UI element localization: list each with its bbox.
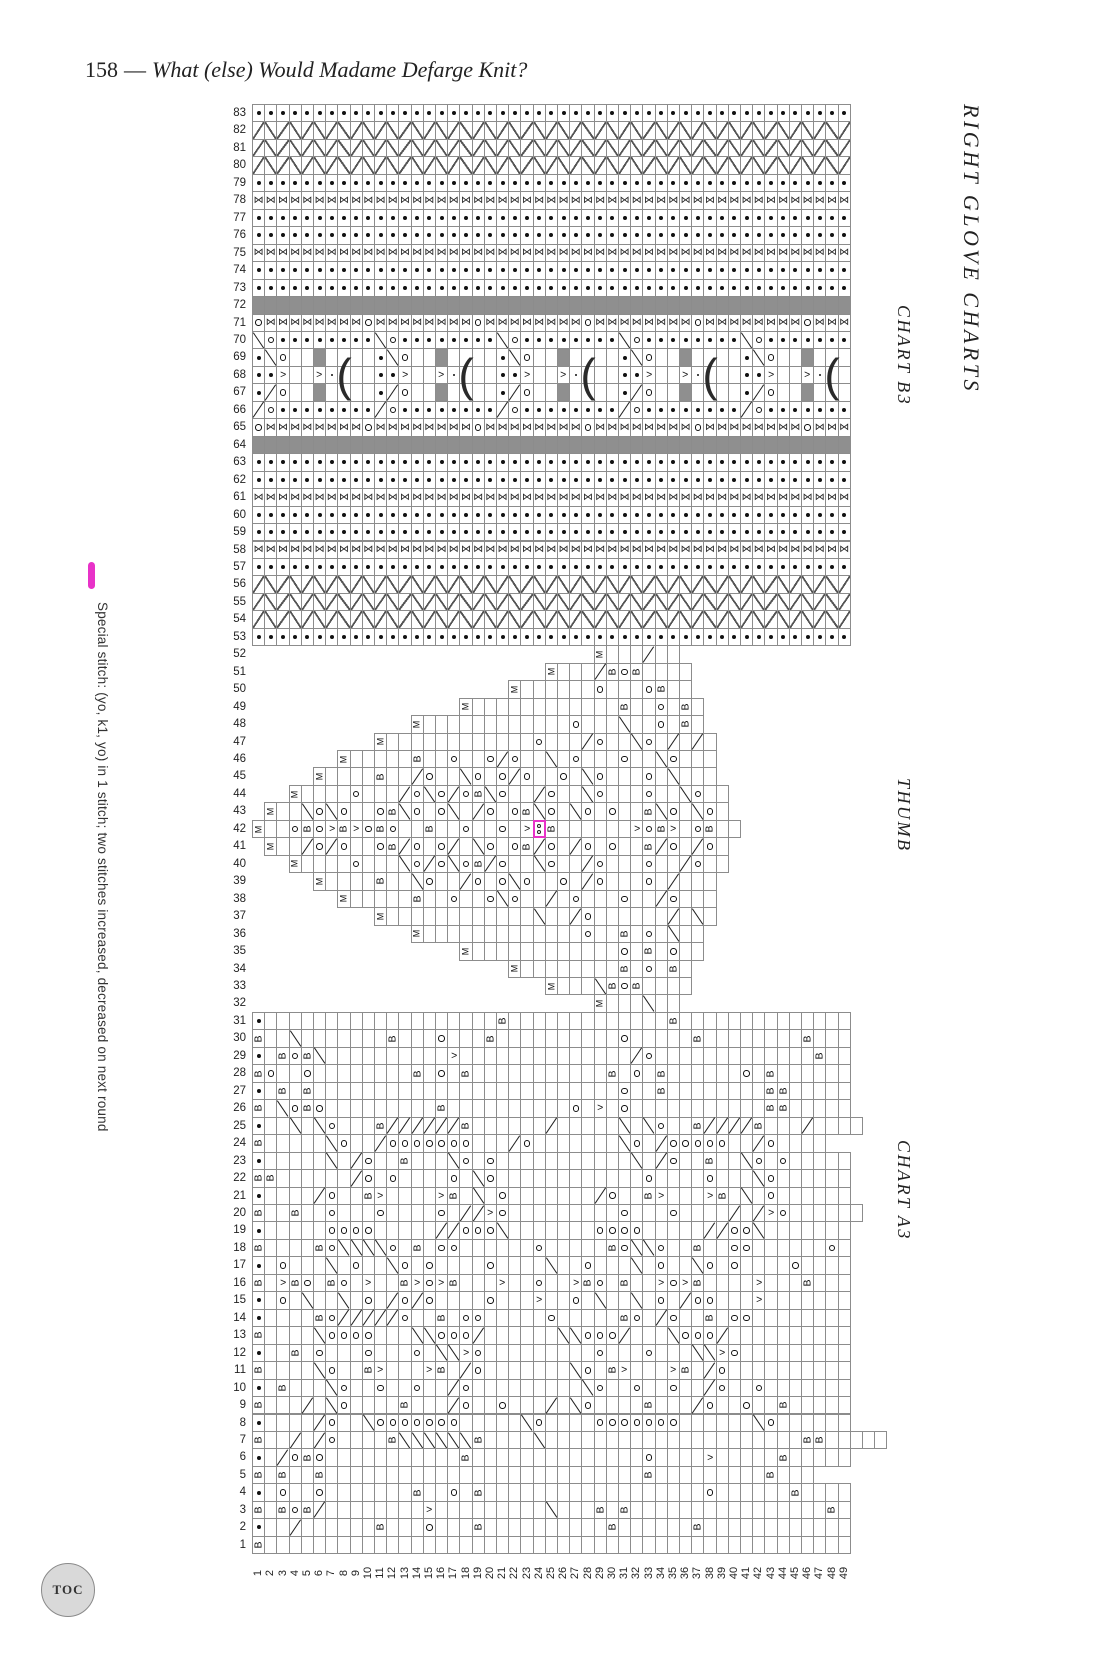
purl-dot-icon	[305, 513, 309, 517]
stitch-cell: ⋈	[398, 418, 411, 436]
cable-cross-cell	[594, 575, 607, 593]
stitch-cell	[691, 1414, 704, 1432]
twist-stitch-icon: ⋈	[461, 544, 471, 555]
purl-dot-icon	[452, 216, 456, 220]
purl-dot-icon	[598, 565, 602, 569]
no-stitch-cell	[545, 436, 558, 454]
stitch-cell	[398, 1344, 411, 1362]
twist-stitch-icon: ⋈	[522, 422, 532, 433]
stitch-cell	[350, 1047, 363, 1065]
stitch-cell	[289, 1448, 302, 1466]
stitch-cell	[545, 104, 558, 122]
stitch-cell: ⋈	[398, 191, 411, 209]
purl-dot-icon	[549, 478, 553, 482]
stitch-cell	[581, 401, 594, 419]
stitch-cell	[520, 1274, 533, 1292]
stitch-cell	[264, 1082, 277, 1100]
twist-stitch-icon: ⋈	[473, 492, 483, 503]
stitch-cell	[667, 1431, 680, 1449]
stitch-cell	[533, 925, 546, 943]
stitch-cell	[289, 331, 302, 349]
stitch-cell	[520, 872, 533, 890]
yarn-over-icon	[743, 1245, 750, 1252]
stitch-cell	[752, 1361, 765, 1379]
twist-stitch-icon: ⋈	[546, 247, 556, 258]
stitch-cell	[386, 1047, 399, 1065]
purl-dot-icon	[354, 478, 358, 482]
bobble-icon: B	[461, 1122, 471, 1129]
stitch-cell	[752, 1169, 765, 1187]
stitch-cell: ⋈	[606, 418, 619, 436]
stitch-cell	[642, 733, 655, 751]
purl-dot-icon	[293, 635, 297, 639]
stitch-cell	[728, 1134, 741, 1152]
cable-cross-cell	[545, 610, 558, 628]
purl-dot-icon	[257, 1421, 261, 1425]
stitch-cell	[581, 785, 594, 803]
stitch-cell	[594, 261, 607, 279]
yarn-over-icon	[585, 1332, 592, 1339]
stitch-cell	[691, 1361, 704, 1379]
purl-dot-icon	[501, 216, 505, 220]
no-stitch-cell	[691, 296, 704, 314]
purl-dot-icon	[635, 565, 639, 569]
stitch-cell	[667, 1134, 680, 1152]
stitch-cell	[630, 558, 643, 576]
yarn-over-icon	[377, 843, 384, 850]
yarn-over-icon	[268, 1070, 275, 1077]
stitch-cell: B	[777, 1448, 790, 1466]
bobble-icon: B	[656, 1070, 666, 1077]
stitch-cell	[362, 1204, 375, 1222]
stitch-cell: B	[642, 942, 655, 960]
stitch-cell	[569, 680, 582, 698]
bobble-icon: B	[315, 1314, 325, 1321]
stitch-cell	[264, 1274, 277, 1292]
purl-dot-icon	[549, 408, 553, 412]
stitch-cell	[642, 1256, 655, 1274]
stitch-cell	[337, 226, 350, 244]
yarn-over-icon	[597, 739, 604, 746]
stitch-cell	[459, 523, 472, 541]
stitch-cell	[703, 174, 716, 192]
purl-dot-icon	[610, 565, 614, 569]
stitch-cell	[813, 1396, 826, 1414]
purl-dot-icon	[842, 216, 846, 220]
stitch-cell	[362, 1221, 375, 1239]
stitch-cell: ⋈	[569, 488, 582, 506]
cable-cross-cell	[764, 121, 777, 139]
stitch-cell	[459, 715, 472, 733]
purl-dot-icon	[330, 233, 334, 237]
purl-dot-icon	[427, 408, 431, 412]
stitch-cell: ⋈	[825, 418, 838, 436]
stitch-cell	[423, 104, 436, 122]
cable-cross-cell	[472, 593, 485, 611]
bobble-icon: B	[693, 1280, 703, 1287]
purl-dot-icon	[793, 286, 797, 290]
no-stitch-cell	[813, 296, 826, 314]
stitch-cell	[752, 1064, 765, 1082]
yarn-over-icon	[621, 1419, 628, 1426]
stitch-cell: ⋈	[289, 488, 302, 506]
twist-stitch-icon: ⋈	[473, 247, 483, 258]
stitch-cell	[667, 1414, 680, 1432]
stitch-cell	[362, 1239, 375, 1257]
right-decrease-icon	[472, 1205, 484, 1221]
stitch-cell	[508, 453, 521, 471]
stitch-cell	[362, 1431, 375, 1449]
stitch-cell: B	[386, 1029, 399, 1047]
stitch-cell	[398, 331, 411, 349]
bobble-icon: B	[705, 1314, 715, 1321]
twist-stitch-icon: ⋈	[266, 492, 276, 503]
stitch-cell	[484, 1396, 497, 1414]
stitch-cell	[411, 506, 424, 524]
cable-cross-cell	[569, 156, 582, 174]
stitch-cell	[594, 1344, 607, 1362]
stitch-cell	[447, 1082, 460, 1100]
left-decrease-icon	[314, 1362, 326, 1378]
stitch-cell	[630, 855, 643, 873]
cable-cross-cell	[484, 610, 497, 628]
right-decrease-icon	[546, 891, 558, 907]
purl-dot-icon	[403, 216, 407, 220]
stitch-cell	[362, 1396, 375, 1414]
stitch-cell	[325, 1187, 338, 1205]
stitch-cell	[642, 750, 655, 768]
stitch-cell	[362, 802, 375, 820]
purl-dot-icon	[305, 565, 309, 569]
slip-marker-icon: >	[329, 823, 335, 835]
purl-dot-icon	[757, 268, 761, 272]
stitch-cell	[813, 453, 826, 471]
stitch-cell	[545, 1064, 558, 1082]
left-decrease-icon	[533, 803, 545, 819]
yarn-over-icon	[634, 407, 641, 414]
stitch-cell	[472, 453, 485, 471]
cable-cross-cell	[606, 593, 619, 611]
stitch-cell	[508, 628, 521, 646]
purl-dot-icon	[501, 513, 505, 517]
yarn-over-icon	[341, 1280, 348, 1287]
yarn-over-icon	[475, 1227, 482, 1234]
yarn-over-icon	[621, 948, 628, 955]
stitch-cell	[667, 1099, 680, 1117]
stitch-cell	[289, 1326, 302, 1344]
purl-dot-icon	[379, 356, 383, 360]
stitch-cell	[752, 523, 765, 541]
stitch-cell	[838, 453, 851, 471]
stitch-cell	[777, 453, 790, 471]
stitch-cell	[752, 1134, 765, 1152]
cable-cross-cell	[777, 593, 790, 611]
stitch-cell	[655, 1117, 668, 1135]
stitch-cell: ⋈	[764, 541, 777, 559]
stitch-cell	[716, 1221, 729, 1239]
stitch-cell	[703, 226, 716, 244]
purl-dot-icon	[745, 268, 749, 272]
stitch-cell	[289, 1379, 302, 1397]
stitch-cell	[813, 1082, 826, 1100]
twist-stitch-icon: ⋈	[400, 492, 410, 503]
yarn-over-icon	[695, 791, 702, 798]
stitch-cell	[545, 942, 558, 960]
cable-cross-cell	[484, 156, 497, 174]
stitch-cell	[423, 331, 436, 349]
stitch-cell	[472, 698, 485, 716]
stitch-cell	[813, 523, 826, 541]
purl-dot-icon	[403, 286, 407, 290]
purl-dot-icon	[562, 530, 566, 534]
stitch-cell	[655, 628, 668, 646]
twist-stitch-icon: ⋈	[607, 195, 617, 206]
no-stitch-cell	[411, 296, 424, 314]
purl-dot-icon	[476, 565, 480, 569]
stitch-cell	[325, 1134, 338, 1152]
bobble-icon: B	[620, 930, 630, 937]
stitch-cell	[350, 1274, 363, 1292]
stitch-cell	[594, 1169, 607, 1187]
stitch-cell: ⋈	[642, 191, 655, 209]
twist-stitch-icon: ⋈	[363, 195, 373, 206]
no-stitch-cell	[398, 296, 411, 314]
stitch-cell	[533, 942, 546, 960]
twist-stitch-icon: ⋈	[668, 544, 678, 555]
purl-dot-icon	[806, 635, 810, 639]
yarn-over-icon	[414, 791, 421, 798]
twist-stitch-icon: ⋈	[729, 247, 739, 258]
right-decrease-icon	[387, 1292, 399, 1308]
stitch-cell	[716, 1134, 729, 1152]
stitch-cell	[533, 226, 546, 244]
stitch-cell	[447, 1221, 460, 1239]
purl-dot-icon	[818, 460, 822, 464]
stitch-cell	[472, 872, 485, 890]
yarn-over-icon	[573, 1297, 580, 1304]
stitch-cell: B	[484, 1029, 497, 1047]
stitch-cell	[301, 209, 314, 227]
stitch-cell	[691, 855, 704, 873]
yarn-over-icon	[537, 830, 541, 834]
twist-stitch-icon: ⋈	[705, 422, 715, 433]
stitch-cell	[459, 1256, 472, 1274]
stitch-cell	[655, 1012, 668, 1030]
yarn-over-icon	[621, 983, 628, 990]
stitch-cell	[789, 1291, 802, 1309]
stitch-cell	[362, 1047, 375, 1065]
make-one-icon: M	[461, 948, 470, 956]
yarn-over-icon	[646, 1350, 653, 1357]
cable-cross-cell	[813, 575, 826, 593]
yarn-over-icon	[353, 1227, 360, 1234]
stitch-cell	[301, 1239, 314, 1257]
stitch-cell: ⋈	[508, 244, 521, 262]
left-decrease-icon	[387, 1257, 399, 1273]
stitch-cell	[264, 1204, 277, 1222]
purl-dot-icon	[732, 216, 736, 220]
stitch-cell	[301, 1414, 314, 1432]
stitch-cell	[642, 453, 655, 471]
yarn-over-icon	[316, 1350, 323, 1357]
stitch-cell	[703, 890, 716, 908]
cable-cross-cell	[301, 139, 314, 157]
twist-stitch-icon: ⋈	[290, 422, 300, 433]
stitch-cell	[667, 1448, 680, 1466]
purl-dot-icon	[781, 111, 785, 115]
bobble-icon: B	[644, 948, 654, 955]
stitch-cell	[655, 855, 668, 873]
cable-cross-cell	[484, 593, 497, 611]
twist-stitch-icon: ⋈	[815, 544, 825, 555]
purl-dot-icon	[342, 513, 346, 517]
purl-dot-icon	[427, 216, 431, 220]
twist-stitch-icon: ⋈	[461, 317, 471, 328]
stitch-cell	[581, 733, 594, 751]
right-decrease-icon	[302, 1397, 314, 1413]
purl-dot-icon	[586, 530, 590, 534]
stitch-cell	[703, 104, 716, 122]
stitch-cell: >	[276, 1274, 289, 1292]
cable-cross-cell	[630, 156, 643, 174]
purl-dot-icon	[745, 565, 749, 569]
stitch-cell	[459, 1082, 472, 1100]
no-stitch-cell	[728, 436, 741, 454]
stitch-cell	[545, 925, 558, 943]
bobble-icon: B	[766, 1087, 776, 1094]
purl-dot-icon	[671, 181, 675, 185]
stitch-cell	[545, 1239, 558, 1257]
stitch-cell	[276, 383, 289, 401]
stitch-cell	[716, 209, 729, 227]
stitch-cell	[594, 209, 607, 227]
yarn-over-icon	[499, 826, 506, 833]
twist-stitch-icon: ⋈	[498, 544, 508, 555]
stitch-cell	[325, 1414, 338, 1432]
stitch-cell	[655, 366, 668, 384]
purl-dot-icon	[269, 111, 273, 115]
no-stitch-cell	[789, 296, 802, 314]
slip-marker-icon: >	[524, 823, 530, 835]
stitch-cell	[545, 855, 558, 873]
twist-stitch-icon: ⋈	[620, 422, 630, 433]
stitch-cell	[520, 1169, 533, 1187]
purl-dot-icon	[452, 111, 456, 115]
stitch-cell	[362, 1326, 375, 1344]
yarn-over-icon	[597, 1332, 604, 1339]
stitch-cell: >	[276, 366, 289, 384]
stitch-cell	[337, 1396, 350, 1414]
stitch-cell	[630, 1344, 643, 1362]
twist-stitch-icon: ⋈	[620, 195, 630, 206]
stitch-cell	[472, 1012, 485, 1030]
stitch-cell	[472, 279, 485, 297]
stitch-cell	[630, 1064, 643, 1082]
stitch-cell	[716, 1379, 729, 1397]
stitch-cell	[642, 890, 655, 908]
yarn-over-icon	[414, 808, 421, 815]
stitch-cell	[484, 1256, 497, 1274]
right-decrease-icon	[472, 803, 484, 819]
left-decrease-icon	[753, 1170, 765, 1186]
yarn-over-icon	[621, 669, 628, 676]
twist-stitch-icon: ⋈	[693, 195, 703, 206]
stitch-cell	[337, 1169, 350, 1187]
purl-dot-icon	[452, 478, 456, 482]
twist-stitch-icon: ⋈	[266, 422, 276, 433]
cable-cross-cell	[411, 121, 424, 139]
purl-dot-icon	[684, 233, 688, 237]
stitch-cell	[411, 401, 424, 419]
stitch-cell: >	[411, 1274, 424, 1292]
stitch-cell	[411, 1396, 424, 1414]
left-decrease-icon	[448, 803, 460, 819]
stitch-cell: B	[777, 1082, 790, 1100]
purl-dot-icon	[391, 286, 395, 290]
purl-dot-icon	[537, 530, 541, 534]
stitch-cell	[386, 890, 399, 908]
gather-icon: (	[702, 370, 717, 380]
slip-marker-icon: >	[658, 1277, 664, 1289]
left-decrease-icon	[289, 1030, 301, 1046]
left-decrease-icon	[350, 1240, 362, 1256]
stitch-cell: M	[289, 855, 302, 873]
twist-stitch-icon: ⋈	[534, 422, 544, 433]
stitch-cell	[569, 767, 582, 785]
yarn-over-icon	[646, 826, 653, 833]
yarn-over-icon	[597, 1419, 604, 1426]
stitch-cell: ⋈	[301, 314, 314, 332]
stitch-cell	[459, 1309, 472, 1327]
twist-stitch-icon: ⋈	[546, 422, 556, 433]
purl-dot-icon	[513, 513, 517, 517]
stitch-cell	[398, 1326, 411, 1344]
stitch-cell	[594, 523, 607, 541]
stitch-cell	[264, 1099, 277, 1117]
stitch-cell	[825, 261, 838, 279]
yarn-over-icon	[475, 319, 482, 326]
yarn-over-icon	[768, 1419, 775, 1426]
stitch-cell	[545, 1344, 558, 1362]
stitch-cell	[777, 523, 790, 541]
slip-marker-icon: >	[280, 369, 286, 381]
purl-dot-icon	[452, 338, 456, 342]
purl-dot-icon	[330, 216, 334, 220]
purl-dot-icon	[464, 338, 468, 342]
left-decrease-icon	[570, 1327, 582, 1343]
twist-stitch-icon: ⋈	[839, 544, 849, 555]
right-decrease-icon	[582, 873, 594, 889]
stitch-cell	[655, 1414, 668, 1432]
purl-dot-icon	[366, 635, 370, 639]
stitch-cell	[642, 1064, 655, 1082]
stitch-cell	[350, 209, 363, 227]
stitch-cell	[728, 628, 741, 646]
twist-stitch-icon: ⋈	[376, 544, 386, 555]
twist-stitch-icon: ⋈	[266, 544, 276, 555]
stitch-cell	[301, 1396, 314, 1414]
stitch-cell	[533, 733, 546, 751]
yarn-over-icon	[255, 319, 262, 326]
slip-marker-icon: >	[524, 369, 530, 381]
purl-dot-icon	[647, 513, 651, 517]
stitch-cell	[655, 1134, 668, 1152]
twist-stitch-icon: ⋈	[424, 247, 434, 258]
stitch-cell	[337, 279, 350, 297]
stitch-cell	[398, 174, 411, 192]
cable-cross-cell	[569, 575, 582, 593]
stitch-cell: B	[764, 1064, 777, 1082]
